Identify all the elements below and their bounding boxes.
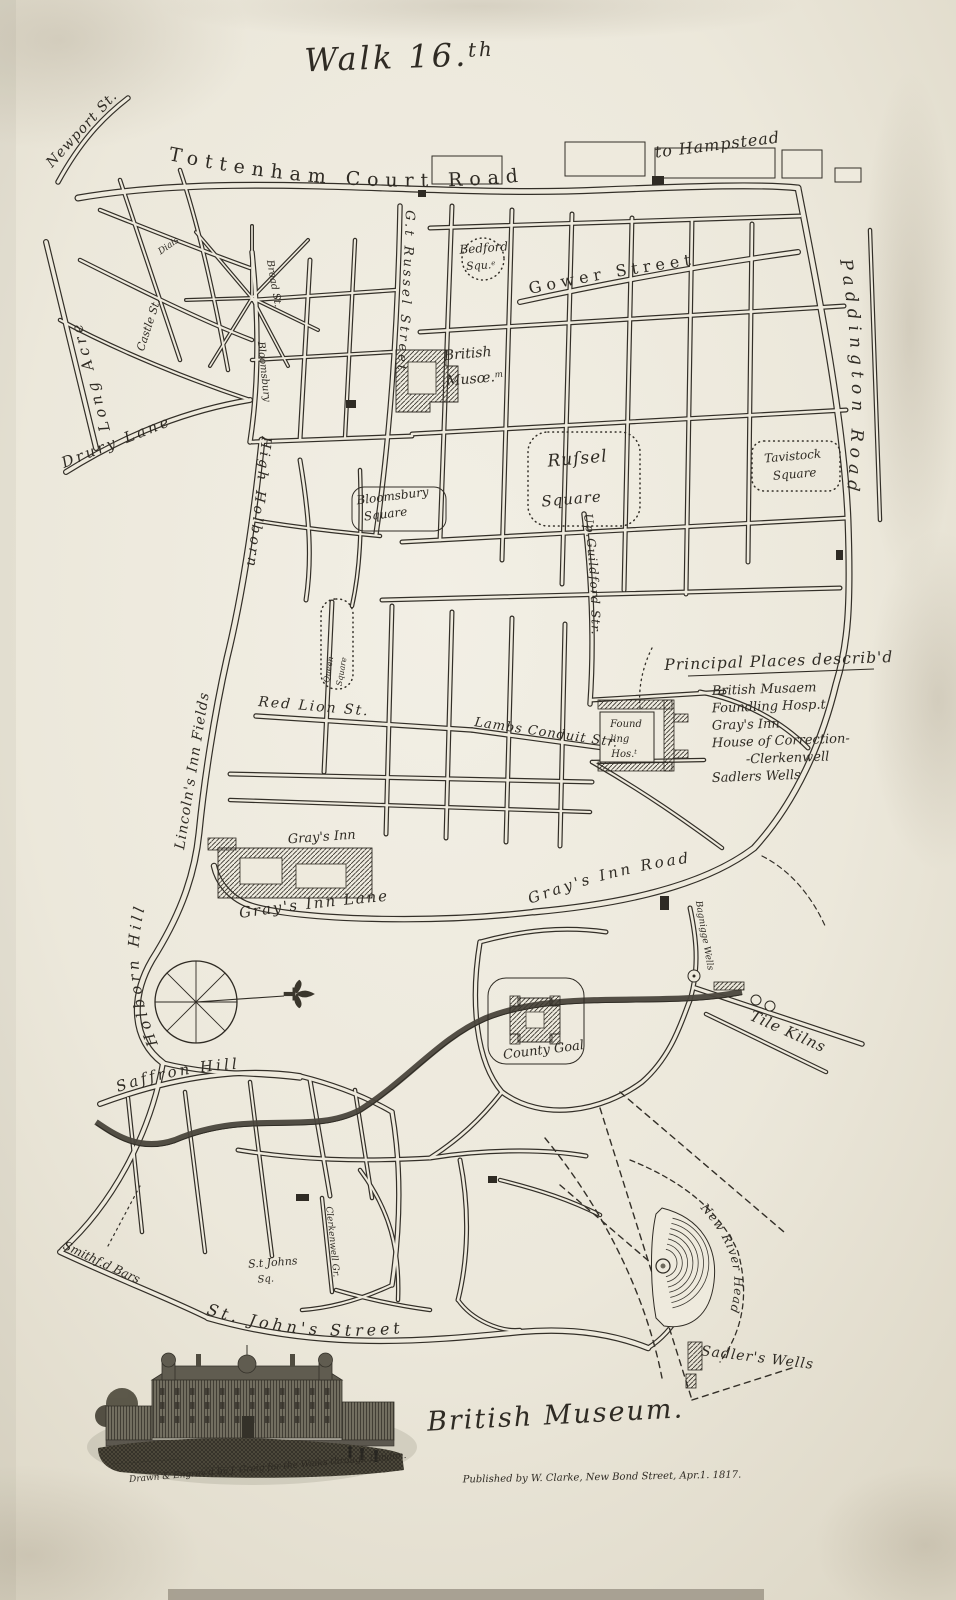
label-foundling-2: -ling bbox=[607, 734, 630, 745]
tile-kilns-marker bbox=[751, 995, 761, 1005]
plate-mark-strip bbox=[168, 1589, 764, 1600]
solid-building-block bbox=[660, 896, 669, 910]
label-foundling-3: Hos.t bbox=[610, 749, 637, 760]
engraved-map-page: Walk 16.th Walk 16.thNewport St.Tottenha… bbox=[0, 0, 956, 1600]
solid-building-block bbox=[488, 1176, 497, 1183]
label-bedford-square-2: Squ.e bbox=[466, 258, 496, 273]
building-foundling-hospital bbox=[598, 700, 672, 709]
solid-building-block bbox=[296, 1194, 309, 1201]
label-st-johns-sq-2: Sq. bbox=[257, 1273, 274, 1285]
label-walk-title: Walk 16.th bbox=[304, 35, 496, 80]
legend-item-4: -Clerkenwell bbox=[746, 750, 830, 768]
map-canvas: Walk 16.thNewport St.Tottenham Court Roa… bbox=[0, 0, 956, 1600]
label-foundling-1: Found bbox=[609, 719, 642, 730]
solid-building-block bbox=[836, 550, 843, 560]
legend-item-2: Gray's Inn bbox=[712, 716, 780, 733]
solid-building-block bbox=[346, 400, 356, 408]
solid-building-block bbox=[652, 176, 664, 185]
legend-item-5: Sadlers Wells bbox=[712, 768, 802, 786]
